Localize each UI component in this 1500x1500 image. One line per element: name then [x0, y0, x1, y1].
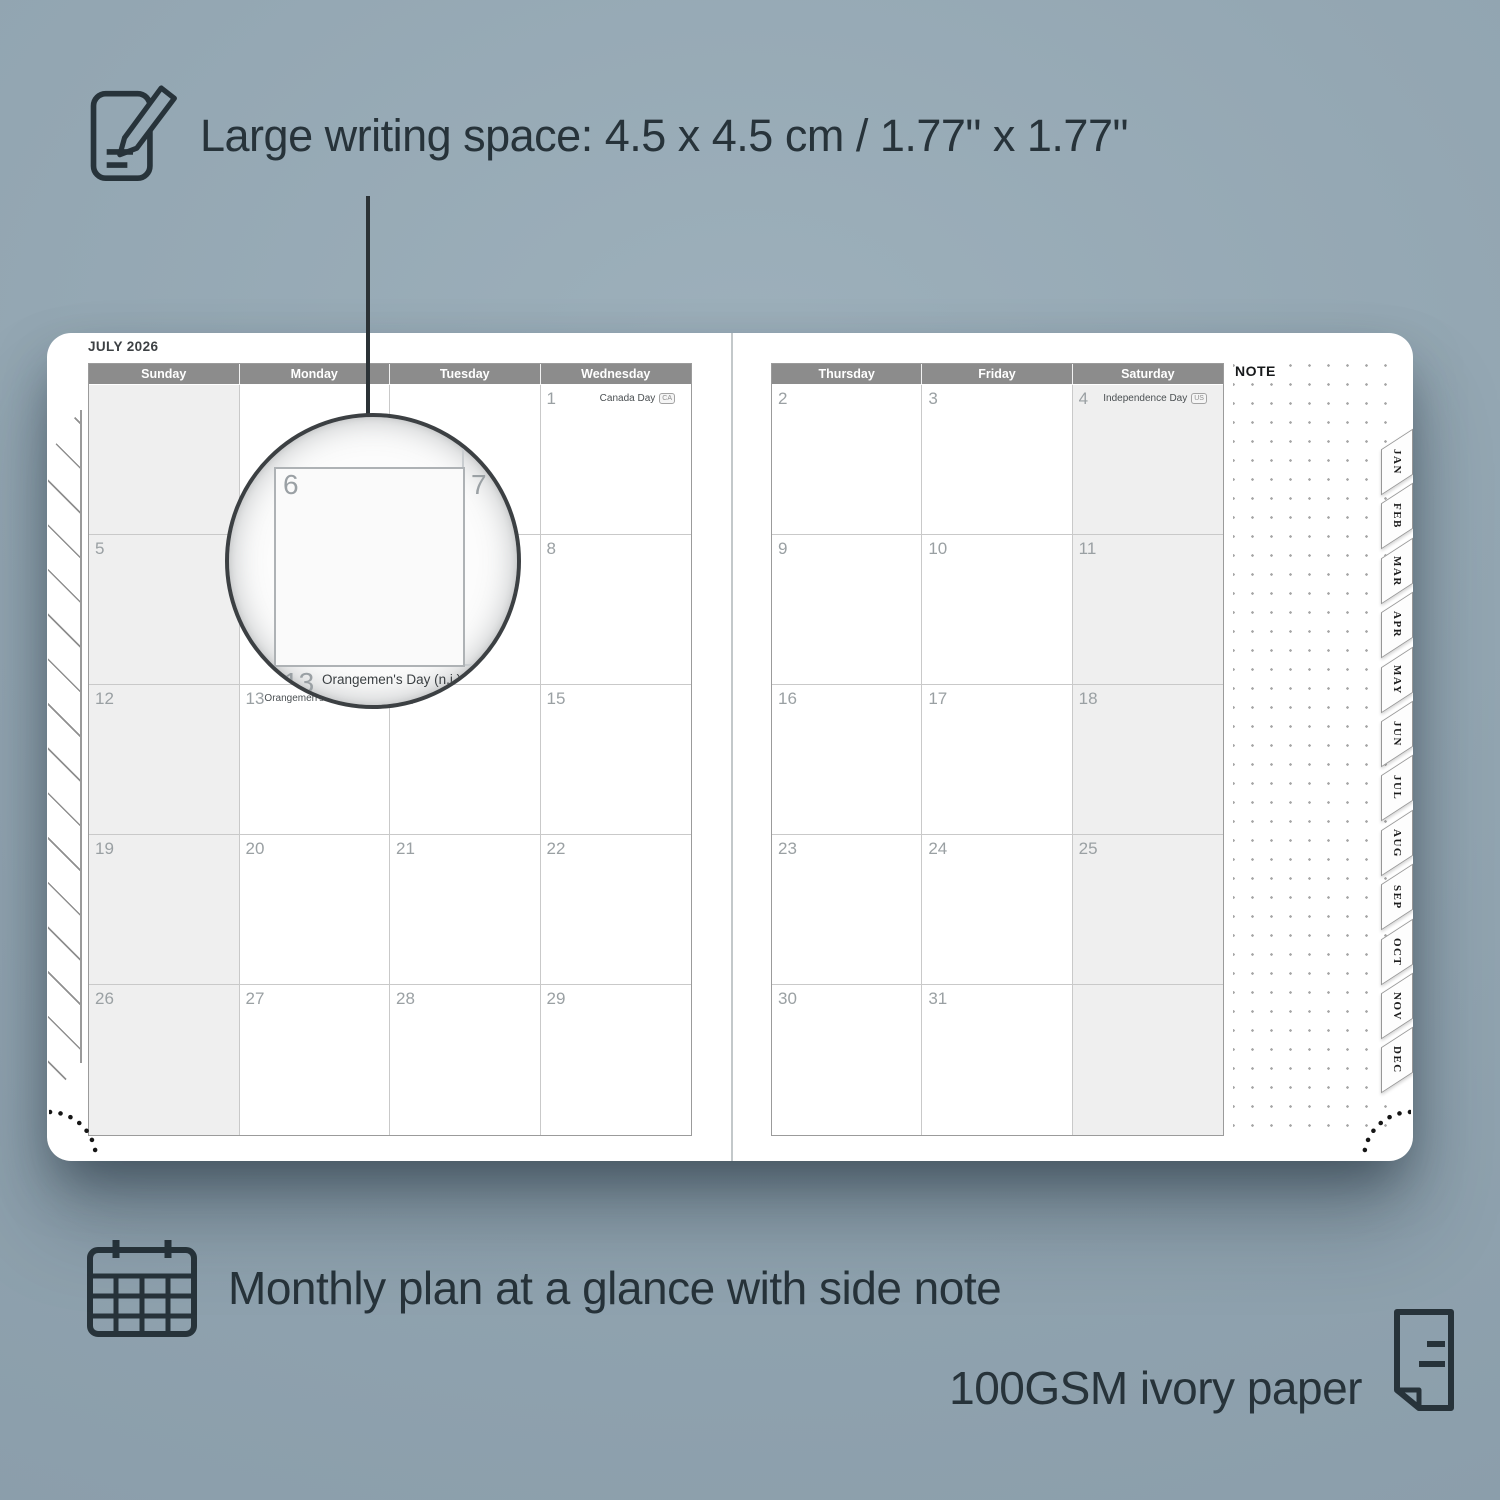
- date-number: 3: [928, 389, 937, 409]
- calendar-cell: 23: [772, 835, 922, 985]
- right-calendar-grid: ThursdayFridaySaturday234Independence Da…: [771, 363, 1224, 1136]
- month-tab-label: AUG: [1382, 821, 1412, 865]
- month-tab-label: MAR: [1382, 549, 1412, 593]
- month-tab-label: JUL: [1382, 766, 1412, 810]
- date-number: 21: [396, 839, 415, 859]
- month-tab-label: SEP: [1382, 875, 1412, 919]
- date-number: 1: [547, 389, 556, 409]
- calendar-cell: 20: [240, 835, 391, 985]
- calendar-icon: [84, 1238, 200, 1338]
- month-tab-label: DEC: [1382, 1038, 1412, 1082]
- calendar-cell: 3: [922, 385, 1072, 535]
- note-column: NOTE: [1233, 363, 1389, 1134]
- date-number: 29: [547, 989, 566, 1009]
- date-number: 26: [95, 989, 114, 1009]
- date-number: 22: [547, 839, 566, 859]
- holiday-label: Independence DayUS: [1103, 393, 1217, 404]
- date-number: 17: [928, 689, 947, 709]
- calendar-cell: 29: [541, 985, 692, 1135]
- calendar-cell: 22: [541, 835, 692, 985]
- month-tab-label: FEB: [1382, 494, 1412, 538]
- calendar-cell: 30: [772, 985, 922, 1135]
- date-number: 20: [246, 839, 265, 859]
- country-badge: US: [1191, 393, 1207, 404]
- calendar-cell: 28: [390, 985, 541, 1135]
- date-number: 8: [547, 539, 556, 559]
- day-header: Friday: [922, 364, 1072, 385]
- date-number: 18: [1079, 689, 1098, 709]
- calendar-cell: 21: [390, 835, 541, 985]
- date-number: 28: [396, 989, 415, 1009]
- holiday-label: Canada DayCA: [600, 393, 685, 404]
- calendar-cell: 19: [89, 835, 240, 985]
- bottom-annotation-line1: Monthly plan at a glance with side note: [228, 1256, 1001, 1320]
- calendar-cell: 11: [1073, 535, 1223, 685]
- top-annotation-text: Large writing space: 4.5 x 4.5 cm / 1.77…: [200, 104, 1128, 168]
- pointer-line: [366, 196, 370, 419]
- calendar-cell: 17: [922, 685, 1072, 835]
- page-spine: [731, 333, 733, 1161]
- calendar-cell: 8: [541, 535, 692, 685]
- calendar-cell: 9: [772, 535, 922, 685]
- magnified-date: 7: [471, 469, 487, 501]
- date-number: 31: [928, 989, 947, 1009]
- dot-grid: [1233, 363, 1389, 1134]
- date-number: 5: [95, 539, 104, 559]
- month-tab-dec: DEC: [1381, 1027, 1413, 1094]
- month-tab-label: OCT: [1382, 930, 1412, 974]
- note-label: NOTE: [1235, 363, 1282, 382]
- calendar-cell: 15: [541, 685, 692, 835]
- calendar-cell: 25: [1073, 835, 1223, 985]
- month-tab-label: NOV: [1382, 984, 1412, 1028]
- writing-space-square: [274, 467, 465, 667]
- date-number: 2: [778, 389, 787, 409]
- calendar-cell: 24: [922, 835, 1072, 985]
- magnified-date: 6: [283, 469, 299, 501]
- date-number: 16: [778, 689, 797, 709]
- day-header: Tuesday: [390, 364, 541, 385]
- month-tab-label: MAY: [1382, 658, 1412, 702]
- magnifier-circle: 6 7 13 Orangemen's Day (n.i.)UK: [225, 413, 521, 709]
- page-edge-hatching: [48, 410, 80, 1105]
- calendar-cell: 16: [772, 685, 922, 835]
- date-number: 11: [1079, 539, 1097, 559]
- date-number: 12: [95, 689, 114, 709]
- magnified-date: 13: [283, 667, 314, 699]
- bottom-annotation-line2: 100GSM ivory paper: [949, 1356, 1362, 1420]
- paper-icon: [1383, 1308, 1465, 1412]
- calendar-cell: 14: [390, 685, 541, 835]
- stitch-right: [1351, 1099, 1411, 1159]
- product-image: Large writing space: 4.5 x 4.5 cm / 1.77…: [0, 0, 1500, 1500]
- date-number: 15: [547, 689, 566, 709]
- date-number: 24: [928, 839, 947, 859]
- day-header: Sunday: [89, 364, 240, 385]
- date-number: 13: [246, 689, 265, 709]
- date-number: 30: [778, 989, 797, 1009]
- calendar-cell: 18: [1073, 685, 1223, 835]
- calendar-cell: 12: [89, 685, 240, 835]
- calendar-cell: [89, 385, 240, 535]
- calendar-cell: 5: [89, 535, 240, 685]
- calendar-cell: 10: [922, 535, 1072, 685]
- date-number: 25: [1079, 839, 1098, 859]
- calendar-cell: 1Canada DayCA: [541, 385, 692, 535]
- magnified-holiday: Orangemen's Day (n.i.)UK: [322, 672, 484, 687]
- country-badge: UK: [465, 673, 484, 686]
- date-number: 23: [778, 839, 797, 859]
- day-header: Thursday: [772, 364, 922, 385]
- day-header: Wednesday: [541, 364, 692, 385]
- planner-spread: JULY 2026 SundayMondayTuesdayWednesday1C…: [47, 333, 1413, 1161]
- month-tab-label: JUN: [1382, 712, 1412, 756]
- stitch-left: [49, 1099, 109, 1159]
- calendar-cell: 2: [772, 385, 922, 535]
- date-number: 9: [778, 539, 787, 559]
- country-badge: CA: [659, 393, 675, 404]
- note-pencil-icon: [86, 82, 180, 188]
- month-title: JULY 2026: [88, 339, 158, 354]
- calendar-cell: [1073, 985, 1223, 1135]
- date-number: 19: [95, 839, 114, 859]
- calendar-cell: 26: [89, 985, 240, 1135]
- date-number: 10: [928, 539, 947, 559]
- date-number: 27: [246, 989, 265, 1009]
- month-tab-label: APR: [1382, 603, 1412, 647]
- page-edge-line: [80, 410, 82, 1063]
- date-number: 4: [1079, 389, 1088, 409]
- calendar-cell: 31: [922, 985, 1072, 1135]
- calendar-cell: 27: [240, 985, 391, 1135]
- day-header: Saturday: [1073, 364, 1223, 385]
- month-tab-label: JAN: [1382, 440, 1412, 484]
- calendar-cell: 4Independence DayUS: [1073, 385, 1223, 535]
- magnified-holiday-text: Orangemen's Day (n.i.): [322, 672, 461, 687]
